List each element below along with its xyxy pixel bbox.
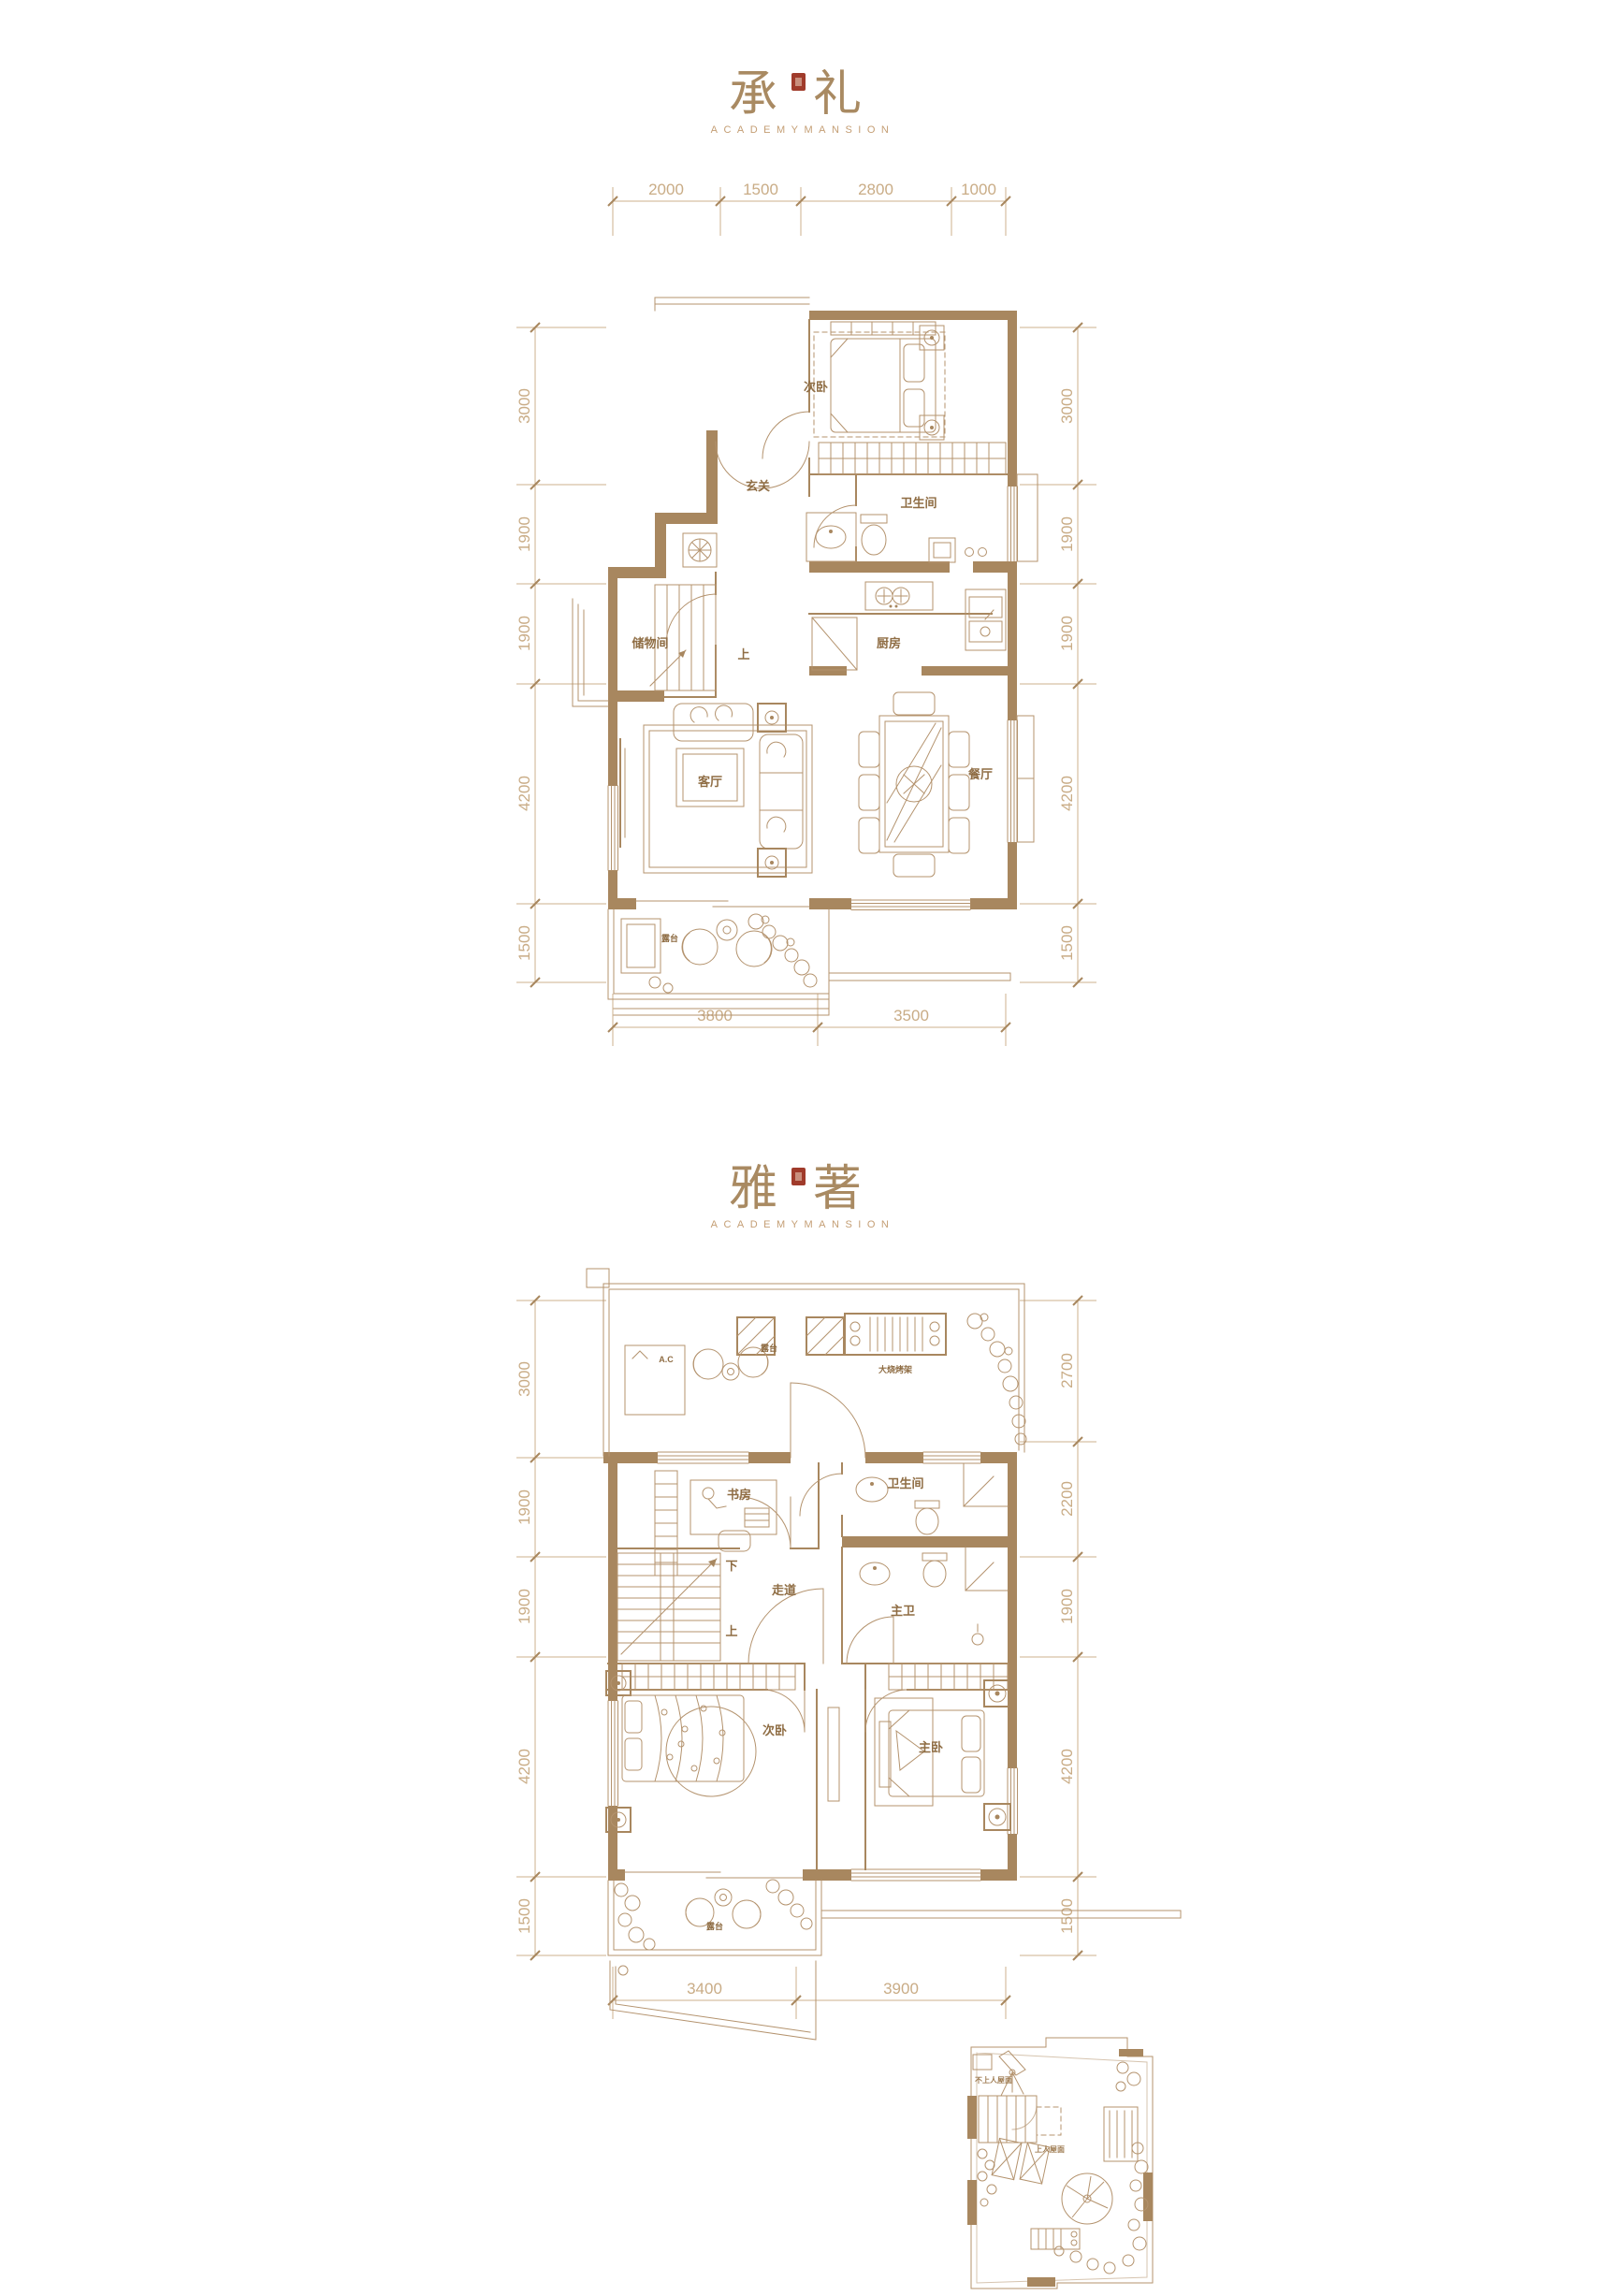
plan2-title-left: 雅 xyxy=(729,1161,777,1217)
dim-label: 1900 xyxy=(1058,516,1076,552)
dim-label: 4200 xyxy=(515,1749,533,1784)
plan2-door-arcs xyxy=(739,1383,907,1732)
plan1-title-left: 承 xyxy=(729,66,777,123)
plan2-room-labels: 露台 A.C 大烧烤架 书房 卫生间 走道 下 上 主卫 次卧 主卧 露台 xyxy=(659,1343,943,1931)
plan1-terrace xyxy=(608,909,1010,1015)
room-label-terrace-bottom: 露台 xyxy=(706,1921,723,1931)
dim-label: 3500 xyxy=(893,1007,929,1024)
dim-label: 3000 xyxy=(515,388,533,424)
plan2-dim-left: 3000 1900 1900 4200 1500 xyxy=(515,1296,606,1960)
room-label-storage: 储物间 xyxy=(631,636,668,650)
plan2-title-block: 雅 著 ACADEMYMANSION xyxy=(711,1161,895,1230)
seal-inner-mark xyxy=(795,1172,802,1181)
dim-label: 1500 xyxy=(515,1898,533,1934)
dim-label: 2700 xyxy=(1058,1353,1076,1388)
room-label-corridor: 走道 xyxy=(772,1583,796,1597)
plan1-door-arcs xyxy=(666,412,856,645)
room-label-entry: 玄关 xyxy=(746,479,770,493)
dim-label: 1000 xyxy=(961,181,996,198)
plan1-dining-furniture xyxy=(859,692,969,877)
plan1-dim-right: 3000 1900 1900 4200 1500 xyxy=(1020,323,1096,987)
dim-label: 3000 xyxy=(1058,388,1076,424)
plan1-title-block: 承 礼 ACADEMYMANSION xyxy=(711,66,895,136)
roof-label-non-accessible: 不上人屋面 xyxy=(975,2075,1012,2085)
dim-label: 1900 xyxy=(1058,616,1076,651)
plan2-partitions xyxy=(608,1463,1008,1869)
dim-label: 1500 xyxy=(743,181,778,198)
plan1-title-right: 礼 xyxy=(813,66,862,123)
room-label-living: 客厅 xyxy=(698,775,722,789)
plan2-dim-right: 2700 2200 1900 4200 1500 xyxy=(1020,1296,1096,1960)
dim-label: 3000 xyxy=(515,1361,533,1397)
plan2-windows xyxy=(587,1269,1024,1881)
room-label-bathroom: 卫生间 xyxy=(900,496,936,510)
dim-label: 1900 xyxy=(515,616,533,651)
plan2-terrace-bottom xyxy=(608,1880,1181,2040)
floorplan-sheet: 承 礼 ACADEMYMANSION 2000 1500 2800 1000 3… xyxy=(0,0,1597,2296)
room-label-bedroom2: 次卧 xyxy=(804,380,828,394)
dim-label: 4200 xyxy=(1058,1749,1076,1784)
dim-label: 1500 xyxy=(1058,925,1076,961)
room-label-kitchen: 厨房 xyxy=(877,636,901,650)
roof-label-accessible: 上人屋面 xyxy=(1035,2144,1065,2154)
room-label-terrace-top: 露台 xyxy=(761,1343,777,1353)
room-label-stairs-up: 上 xyxy=(737,647,749,661)
plan2-title-right: 著 xyxy=(813,1161,862,1217)
plan2-walls xyxy=(603,1452,1017,1881)
room-label-bedroom2: 次卧 xyxy=(762,1723,787,1737)
dim-label: 4200 xyxy=(515,776,533,811)
plan1-living-furniture xyxy=(620,704,812,877)
room-label-bbq: 大烧烤架 xyxy=(878,1364,912,1374)
room-label-bathroom2: 卫生间 xyxy=(887,1476,923,1490)
plan1-subtitle: ACADEMYMANSION xyxy=(711,124,895,136)
seal-inner-mark xyxy=(795,78,802,86)
dim-label: 1500 xyxy=(1058,1898,1076,1934)
dim-label: 1900 xyxy=(515,1489,533,1525)
room-label-master-bath: 主卫 xyxy=(891,1604,915,1618)
room-label-stairs-down: 下 xyxy=(725,1559,737,1573)
room-label-dining: 餐厅 xyxy=(967,767,993,781)
plan1-dim-top: 2000 1500 2800 1000 xyxy=(608,181,1010,236)
room-label-study: 书房 xyxy=(727,1488,751,1502)
floorplan-canvas: 承 礼 ACADEMYMANSION 2000 1500 2800 1000 3… xyxy=(0,0,1597,2296)
plan2-masterbath-fixtures xyxy=(860,1548,1008,1645)
dim-label: 2800 xyxy=(858,181,893,198)
room-label-ac: A.C xyxy=(659,1355,674,1364)
dim-label: 4200 xyxy=(1058,776,1076,811)
dim-label: 3900 xyxy=(883,1980,919,1998)
plan2-stairs xyxy=(617,1553,720,1661)
plan2-subtitle: ACADEMYMANSION xyxy=(711,1219,895,1230)
roof-inset: 不上人屋面 上人屋面 xyxy=(967,2038,1153,2289)
room-label-stairs-up: 上 xyxy=(725,1624,737,1638)
dim-label: 1500 xyxy=(515,925,533,961)
dim-label: 1900 xyxy=(515,1589,533,1624)
plan2-terrace-top xyxy=(625,1314,1026,1445)
plan2-dim-bottom: 3400 3900 xyxy=(608,1967,1010,2019)
plan1-dim-bottom: 3800 3500 xyxy=(608,994,1010,1046)
dim-label: 3400 xyxy=(687,1980,722,1998)
plan2-bathroom-fixtures xyxy=(856,1463,1008,1534)
dim-label: 2200 xyxy=(1058,1481,1076,1517)
dim-label: 1900 xyxy=(515,516,533,552)
plan1-bathroom-fixtures xyxy=(806,513,987,562)
plan1-kitchen-fixtures xyxy=(812,582,1006,670)
dim-label: 1900 xyxy=(1058,1589,1076,1624)
plan1-bedroom2-furniture xyxy=(814,322,1006,474)
dim-label: 2000 xyxy=(648,181,684,198)
plan1-dim-left: 3000 1900 1900 4200 1500 xyxy=(515,323,606,987)
room-label-master: 主卧 xyxy=(919,1740,943,1754)
room-label-terrace: 露台 xyxy=(661,933,678,943)
